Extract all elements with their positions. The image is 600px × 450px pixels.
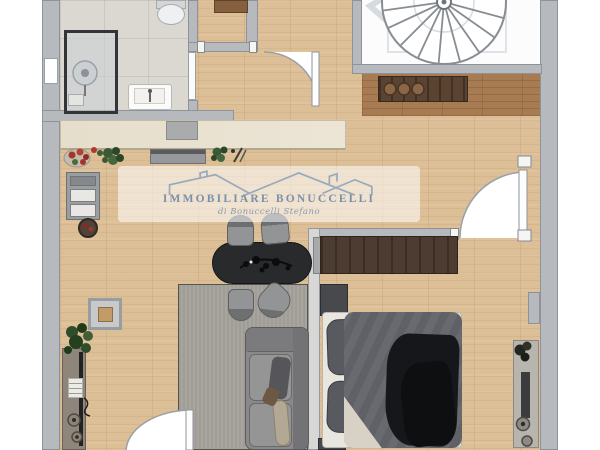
sofa-backrest — [293, 328, 308, 449]
fridge-shelf — [70, 189, 96, 202]
hall-cabinet — [214, 0, 248, 13]
wall-right — [540, 0, 558, 450]
agency-watermark: IMMOBILIARE BONUCCELLI di Bonuccelli Ste… — [118, 166, 420, 222]
wall-staircase-left — [352, 0, 362, 72]
door-jamb — [197, 41, 205, 53]
kitchen-sink — [166, 121, 198, 140]
console-shelf-strip — [521, 372, 530, 418]
window — [44, 58, 58, 84]
dining-table — [212, 242, 312, 284]
toilet — [157, 4, 185, 25]
side-table — [88, 298, 122, 330]
radiator — [79, 352, 83, 446]
wall-staircase-bottom — [352, 64, 542, 74]
wall-pillar — [528, 292, 540, 324]
agency-subtitle: di Bonuccelli Stefano — [118, 207, 420, 217]
bathroom-door-leaf — [188, 52, 196, 100]
console-card — [68, 378, 83, 398]
sideboard — [378, 76, 468, 102]
kitchen-counter — [60, 120, 346, 150]
kitchen-bowl — [78, 218, 98, 238]
fridge-top-panel — [70, 176, 96, 186]
page-margin-right — [558, 0, 600, 450]
blanket-fold — [398, 360, 458, 449]
floor-plan: IMMOBILIARE BONUCCELLI di Bonuccelli Ste… — [0, 0, 600, 450]
wardrobe — [320, 236, 458, 274]
shower-tray — [68, 94, 84, 106]
washbasin-bowl — [134, 88, 165, 104]
sofa — [245, 327, 309, 450]
dining-chair — [228, 289, 254, 321]
staircase-room-floor — [362, 0, 540, 66]
door-jamb — [249, 41, 257, 53]
side-table-top — [98, 307, 113, 322]
cooktop — [150, 149, 206, 164]
agency-name: IMMOBILIARE BONUCCELLI — [118, 193, 420, 205]
fridge-shelf — [70, 204, 96, 217]
page-margin-left — [0, 0, 42, 450]
